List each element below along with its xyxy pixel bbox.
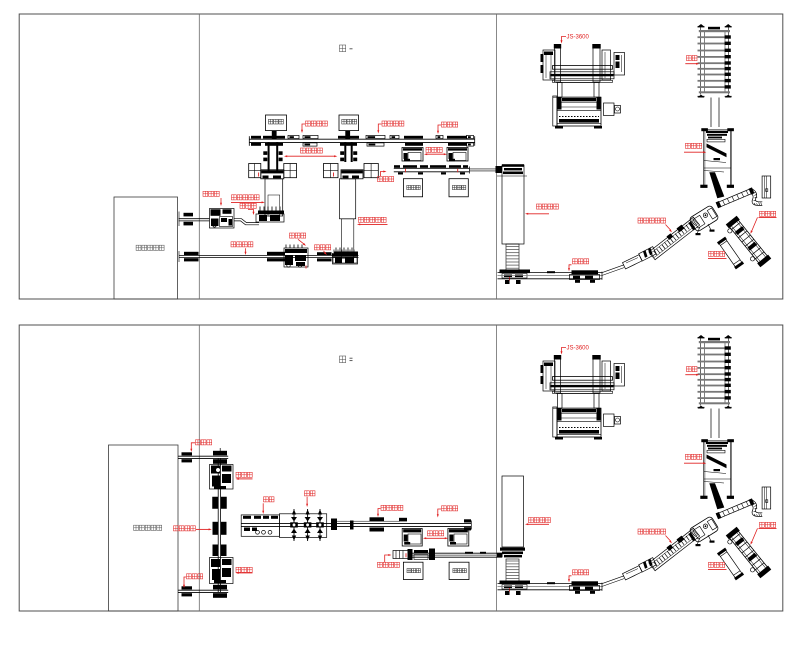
svg-text:JS-3600: JS-3600 xyxy=(567,35,590,41)
svg-text:JS-3600: JS-3600 xyxy=(567,346,590,352)
